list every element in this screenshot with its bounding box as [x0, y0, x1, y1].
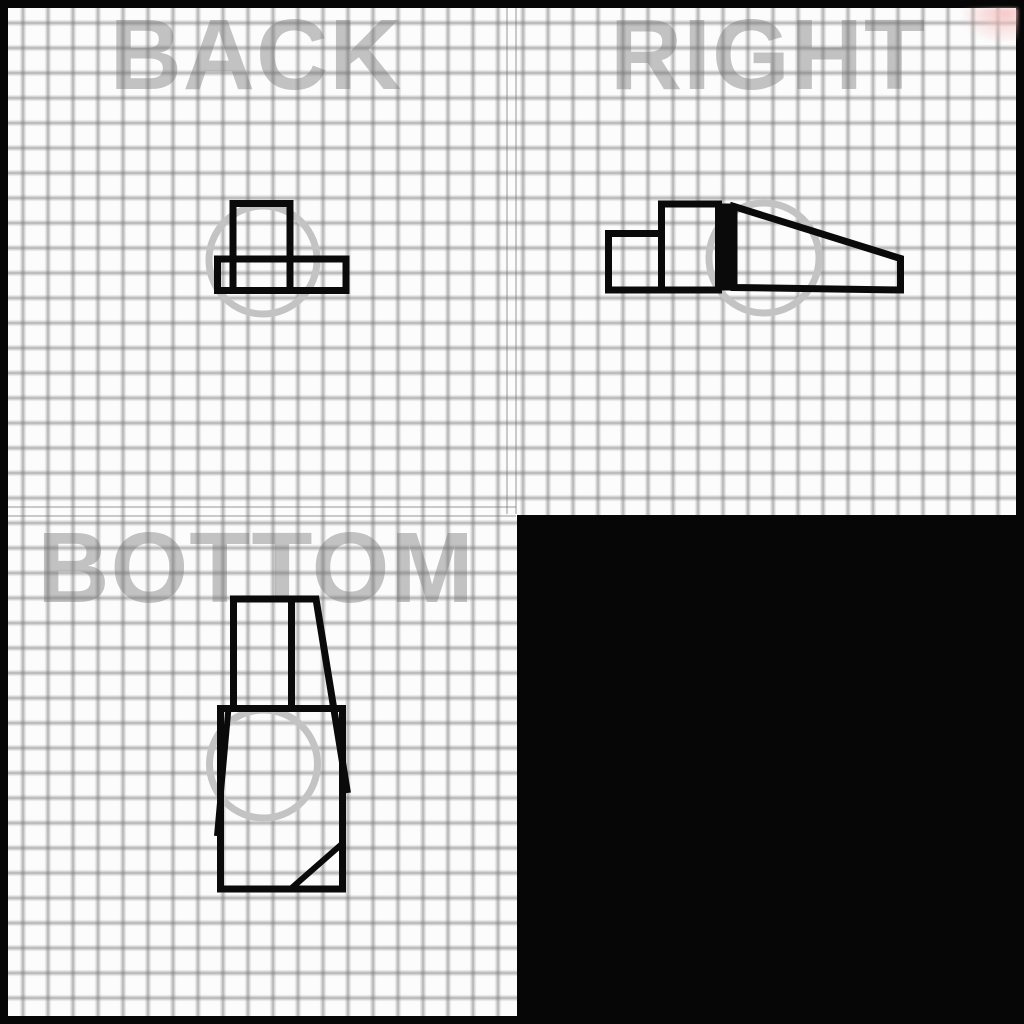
back-view-base-bar: [218, 259, 347, 291]
drawing-canvas: BACK RIGHT BOTTOM: [0, 0, 1024, 1024]
bottom-view-chamfer: [291, 843, 344, 889]
back-view-upper-block: [233, 204, 290, 291]
blank-quadrant: [517, 515, 1024, 1024]
right-view-low-step: [609, 234, 662, 291]
